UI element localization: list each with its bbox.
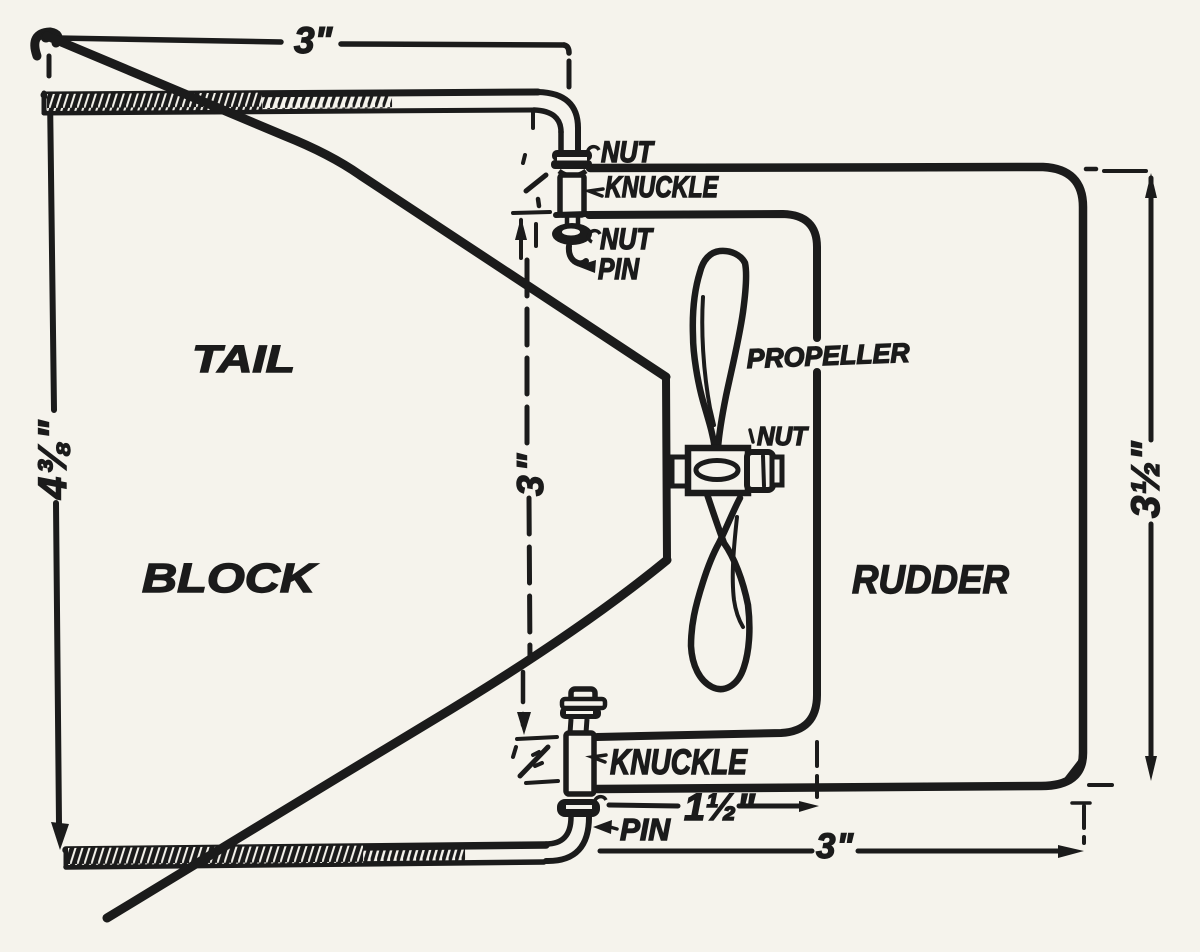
svg-text:KNUCKLE: KNUCKLE — [605, 171, 719, 204]
svg-text:TAIL: TAIL — [192, 339, 295, 381]
svg-text:KNUCKLE: KNUCKLE — [610, 743, 748, 782]
svg-text:3": 3" — [816, 827, 854, 866]
svg-text:3": 3" — [294, 20, 333, 61]
svg-text:3": 3" — [510, 450, 551, 496]
svg-text:NUT: NUT — [757, 421, 809, 451]
svg-text:1½": 1½" — [684, 787, 756, 829]
svg-text:NUT: NUT — [600, 223, 654, 256]
svg-text:PROPELLER: PROPELLER — [746, 338, 911, 374]
svg-text:BLOCK: BLOCK — [142, 555, 319, 601]
svg-text:RUDDER: RUDDER — [852, 558, 1009, 602]
svg-text:PIN: PIN — [598, 253, 640, 286]
svg-text:PIN: PIN — [620, 812, 671, 847]
svg-text:4⅜": 4⅜" — [31, 418, 75, 500]
svg-text:3½": 3½" — [1124, 440, 1168, 518]
